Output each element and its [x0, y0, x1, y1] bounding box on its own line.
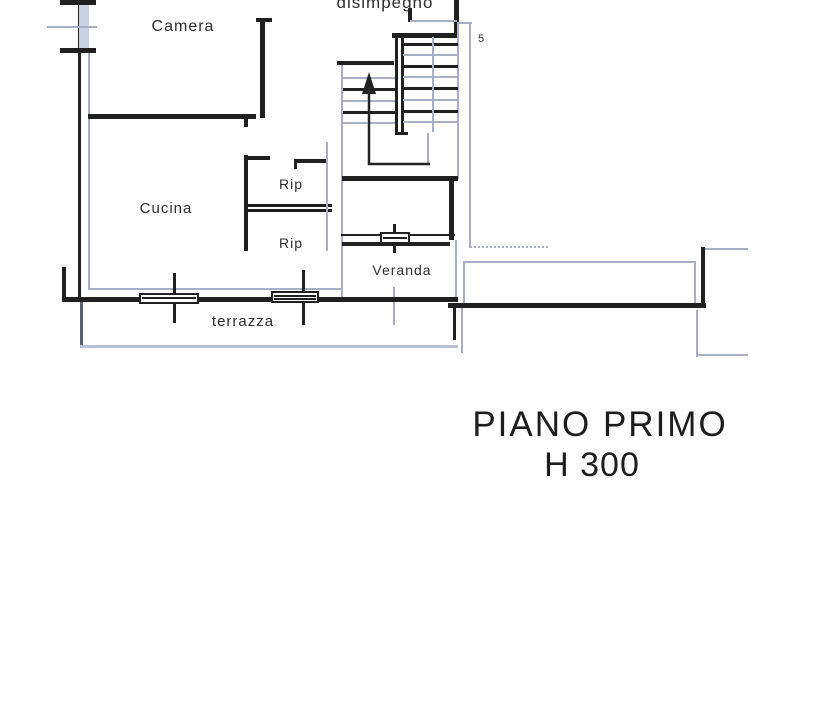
room-label-rip-upper: Rip: [279, 176, 303, 192]
terrazza-right-line: [461, 306, 463, 353]
balcony-bottom-wall: [448, 303, 706, 308]
room-label-veranda: Veranda: [372, 262, 431, 278]
wall-rip-top-b: [294, 159, 328, 163]
wall-left-inner-line: [88, 53, 90, 290]
wall-building-bottom: [62, 297, 458, 302]
caption-height: H 300: [544, 446, 640, 485]
window-symbol-veranda-sash: [383, 237, 407, 239]
caption-title: PIANO PRIMO: [472, 405, 727, 445]
wall-rip-top-b-hook: [294, 159, 297, 169]
wall-camera-bottom: [88, 114, 256, 119]
room-label-camera: Camera: [152, 18, 215, 36]
stair-step: [403, 54, 458, 56]
stair-hall-bottom-wall: [342, 176, 458, 181]
stair-left-boundary-line: [341, 61, 343, 302]
wall-rip-right-line: [326, 142, 328, 251]
dimension-line: [47, 26, 97, 28]
wall-rip-left: [244, 155, 248, 251]
wall-camera-right: [260, 20, 265, 118]
stair-left-flight-top: [337, 61, 394, 65]
balcony-left-line: [463, 261, 465, 305]
balcony-dotted-line: [470, 246, 548, 248]
window-symbol-cucina-1-sash: [142, 297, 196, 299]
window-symbol-cucina-2: [271, 291, 319, 303]
room-label-cucina: Cucina: [140, 200, 193, 217]
wall-rip-top-a: [247, 156, 270, 160]
room-label-terrazza: terrazza: [212, 313, 274, 330]
balcony-right-wall: [701, 247, 705, 307]
balcony-ext-line-top: [705, 248, 748, 250]
veranda-center-tick: [393, 287, 395, 325]
wall-right-exterior-line: [469, 22, 471, 248]
window-left-tick-bottom: [60, 48, 96, 53]
room-label-rip-lower: Rip: [279, 235, 303, 251]
scanned-floorplan-page: disimpegno Camera Cucina Rip Rip Veranda…: [0, 0, 822, 720]
stair-mark: 5: [478, 33, 484, 45]
window-left-tick-top: [60, 0, 96, 5]
balcony-right-line: [694, 261, 696, 308]
terrazza-left-edge: [80, 302, 83, 347]
wall-rip-divider-inner: [247, 209, 332, 212]
wall-rip-divider-outer: [247, 204, 332, 207]
door-jamb-camera: [244, 118, 248, 127]
threshold-line-a: [410, 20, 457, 22]
window-symbol-cucina-2-sash-a: [274, 295, 316, 297]
terrazza-bottom-edge: [80, 345, 458, 348]
window-symbol-cucina-2-sash-b: [274, 298, 316, 300]
balcony-ext-line-vert: [696, 310, 698, 357]
veranda-right-line: [455, 240, 457, 302]
balcony-top-line: [463, 261, 696, 263]
stair-step: [403, 43, 458, 46]
room-label-disimpegno: disimpegno: [337, 0, 434, 13]
balcony-ext-line-bottom: [696, 354, 748, 356]
wall-veranda-right: [449, 179, 454, 240]
stair-direction-arrow: [353, 68, 435, 170]
wall-camera-right-tick: [256, 18, 272, 22]
terrazza-right-edge: [453, 306, 456, 340]
pilaster-left: [62, 267, 66, 299]
